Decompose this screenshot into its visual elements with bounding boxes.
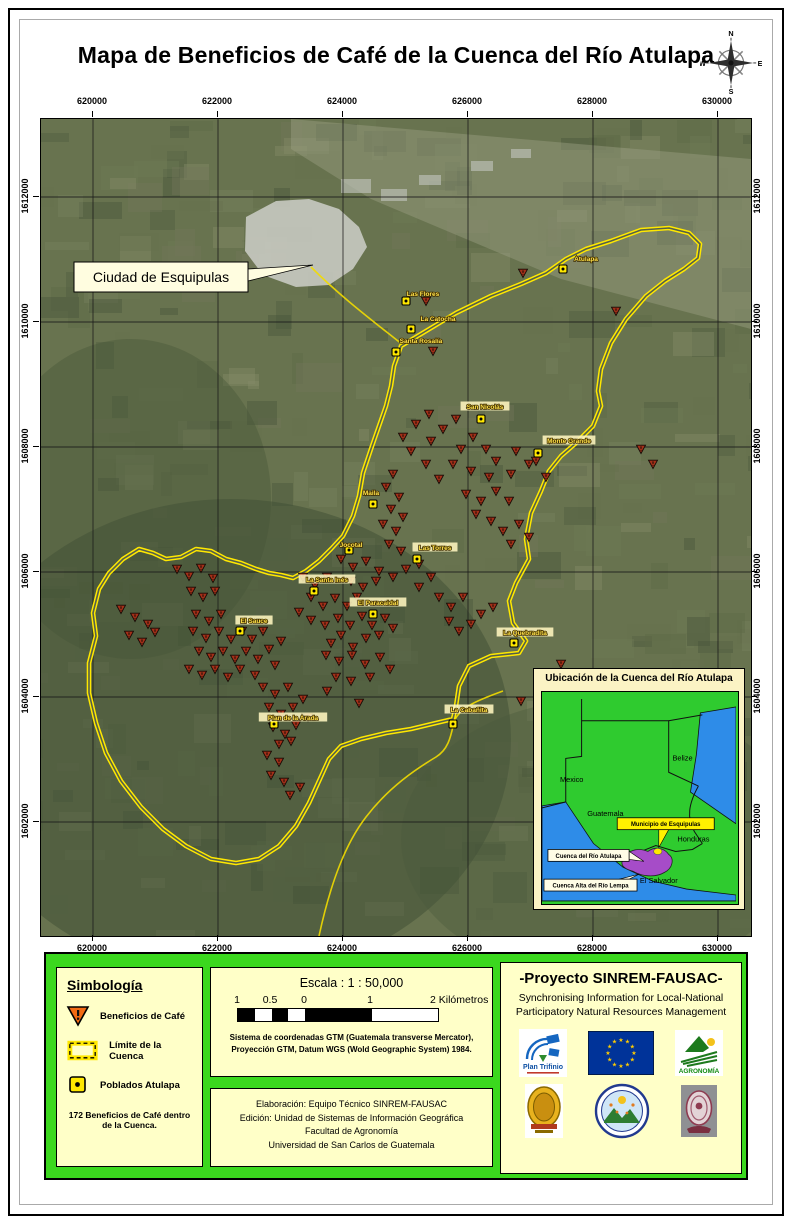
inset-callout-label: Municipio de Esquipulas [631,822,701,828]
x-tick [217,111,218,117]
y-tick [33,196,39,197]
inset-map: Ubicación de la Cuenca del Río Atulapa M… [533,668,745,910]
x-tick [217,935,218,941]
y-tick-label: 1604000 [752,674,762,718]
svg-text:★: ★ [618,1037,623,1044]
town-label: La Catocha [420,316,455,323]
svg-text:★: ★ [630,1044,635,1051]
scale-title: Escala : 1 : 50,000 [211,976,492,990]
agronomia-label: AGRONOMÍA [678,1066,719,1075]
compass-rose-icon: N E S W [700,28,762,94]
x-tick-label: 622000 [195,943,239,953]
inset-country-label: Belize [672,753,692,762]
town-label: La Santa Inés [306,577,348,584]
legend-label-limite: Límite de la Cuenca [109,1040,196,1062]
footer-panel: Simbología Beneficios de Café Límite de … [44,952,748,1180]
credits-panel: Elaboración: Equipo Técnico SINREM-FAUSA… [210,1088,493,1167]
x-tick [92,935,93,941]
scale-label-05: 0.5 [263,994,278,1006]
svg-text:★: ★ [630,1057,635,1064]
y-tick [33,571,39,572]
x-tick [717,935,718,941]
page-title: Mapa de Beneficios de Café de la Cuenca … [0,42,792,69]
inset-title: Ubicación de la Cuenca del Río Atulapa [534,673,744,684]
scale-label-1-right: 1 [367,994,373,1006]
scale-bar-zone: 1 0.5 0 1 2 Kilómetros [237,994,477,1024]
x-tick [717,111,718,117]
y-tick-label: 1612000 [20,174,30,218]
town-marker [477,415,485,423]
town-label: Las Torres [419,545,452,552]
scale-label-1-left: 1 [234,994,240,1006]
inset-country-label: Honduras [677,835,709,844]
legend-item-beneficios: Beneficios de Café [65,1004,196,1028]
town-label: San Nicolás [467,404,504,411]
svg-text:★: ★ [618,1063,623,1070]
town-label: La Cabañita [451,707,488,714]
y-tick-label: 1606000 [20,549,30,593]
x-tick-label: 630000 [695,943,739,953]
project-subtitle-line2: Participatory Natural Resources Manageme… [516,1007,726,1018]
x-tick [592,935,593,941]
city-callout-label: Ciudad de Esquipulas [93,269,229,285]
y-tick-label: 1602000 [752,799,762,843]
compass-s-label: S [729,87,734,94]
town-label: Plan de la Arada [268,715,319,722]
x-tick-label: 622000 [195,96,239,106]
svg-text:★: ★ [625,1062,630,1069]
x-tick [467,111,468,117]
y-tick-label: 1610000 [752,299,762,343]
x-tick-label: 628000 [570,943,614,953]
town-label: El Paracaidal [358,600,399,607]
usac-seal-logo [594,1083,650,1139]
cuenca-boundary-icon [65,1039,100,1063]
x-tick-label: 630000 [695,96,739,106]
inset-callout-label: Cuenca del Río Atulapa [556,854,623,860]
legend-item-limite: Límite de la Cuenca [65,1039,196,1063]
y-tick [33,821,39,822]
town-marker [413,555,421,563]
town-marker [402,297,410,305]
svg-text:★: ★ [612,1062,617,1069]
y-tick [33,446,39,447]
y-tick-label: 1608000 [752,424,762,468]
y-tick [33,696,39,697]
inset-map-area: MexicoGuatemalaBelizeHondurasEl Salvador… [541,691,739,905]
credit-universidad: Universidad de San Carlos de Guatemala [268,1140,434,1150]
town-label: El Sauce [240,618,267,625]
town-marker [369,500,377,508]
plan-trifinio-logo: Plan Trifinio [519,1029,567,1077]
scale-panel: Escala : 1 : 50,000 1 0.5 0 1 2 Kilómetr… [210,967,493,1077]
x-tick-label: 624000 [320,96,364,106]
crs-line2: Proyección GTM, Datum WGS (Wold Geograph… [231,1045,471,1054]
x-tick [342,935,343,941]
legend-heading: Simbología [67,977,202,993]
gold-seal-logo [525,1084,563,1138]
legend-label-beneficios: Beneficios de Café [100,1011,185,1022]
inset-country-label: El Salvador [640,876,678,885]
crs-line1: Sistema de coordenadas GTM (Guatemala tr… [230,1033,474,1042]
town-marker [534,449,542,457]
compass-w-label: W [700,59,706,68]
town-label: Atulapa [574,256,598,263]
oval-seal-logo [681,1085,717,1137]
scale-label-2km: 2 Kilómetros [430,994,488,1006]
project-subtitle-line1: Synchronising Information for Local-Nati… [519,993,723,1004]
x-tick-label: 620000 [70,96,114,106]
y-tick-label: 1606000 [752,549,762,593]
town-marker [236,627,244,635]
y-tick [33,321,39,322]
scale-label-0: 0 [301,994,307,1006]
x-tick-label: 628000 [570,96,614,106]
inset-country-label: Mexico [560,775,583,784]
town-label: Santa Rosalía [400,338,443,345]
town-marker [392,348,400,356]
town-label: Maila [363,490,380,497]
x-tick [342,111,343,117]
x-tick [467,935,468,941]
town-marker [407,325,415,333]
legend-item-poblados: Poblados Atulapa [65,1074,196,1096]
town-marker [310,587,318,595]
town-marker [449,720,457,728]
x-tick-label: 626000 [445,943,489,953]
plan-trifinio-label: Plan Trifinio [523,1064,563,1071]
agronomia-logo: AGRONOMÍA [675,1030,723,1076]
inset-callout-label: Cuenca Alta del Río Lempa [552,884,629,890]
eu-flag-logo: ★★★★★★★★★★★★ [588,1031,654,1075]
scale-bar [237,1008,439,1022]
x-tick-label: 624000 [320,943,364,953]
credit-facultad: Facultad de Agronomía [305,1126,398,1136]
town-label: Monte Grande [547,438,591,445]
svg-text:★: ★ [612,1039,617,1046]
town-label: Jocotal [340,542,363,549]
x-tick [592,111,593,117]
town-marker [369,610,377,618]
y-tick-label: 1604000 [20,674,30,718]
y-tick-label: 1608000 [20,424,30,468]
town-label: Las Flores [407,291,440,298]
x-tick-label: 620000 [70,943,114,953]
inset-municipio-esquipulas-area [654,848,662,854]
legend-label-poblados: Poblados Atulapa [100,1080,180,1091]
svg-text:★: ★ [607,1057,612,1064]
poblado-icon [65,1074,91,1096]
credit-edicion: Edición: Unidad de Sistemas de Informaci… [240,1113,464,1123]
y-tick-label: 1602000 [20,799,30,843]
svg-text:★: ★ [631,1050,636,1057]
y-tick-label: 1612000 [752,174,762,218]
y-tick-label: 1610000 [20,299,30,343]
compass-n-label: N [728,29,733,38]
inset-country-label: Guatemala [587,809,624,818]
credit-elaboracion: Elaboración: Equipo Técnico SINREM-FAUSA… [256,1099,447,1109]
town-label: La Quebradita [503,630,547,637]
crs-note: Sistema de coordenadas GTM (Guatemala tr… [211,1032,492,1055]
legend-panel: Simbología Beneficios de Café Límite de … [56,967,203,1167]
project-panel: -Proyecto SINREM-FAUSAC- Synchronising I… [500,962,742,1174]
x-tick [92,111,93,117]
beneficio-triangle-icon [65,1004,91,1028]
x-tick-label: 626000 [445,96,489,106]
map-sheet: Mapa de Beneficios de Café de la Cuenca … [0,0,792,1224]
project-title: -Proyecto SINREM-FAUSAC- [501,970,741,987]
town-marker [510,639,518,647]
compass-e-label: E [758,59,762,68]
project-subtitle: Synchronising Information for Local-Nati… [501,992,741,1019]
svg-text:★: ★ [605,1050,610,1057]
legend-count-note: 172 Beneficios de Café dentro de la Cuen… [57,1110,202,1130]
town-marker [559,265,567,273]
